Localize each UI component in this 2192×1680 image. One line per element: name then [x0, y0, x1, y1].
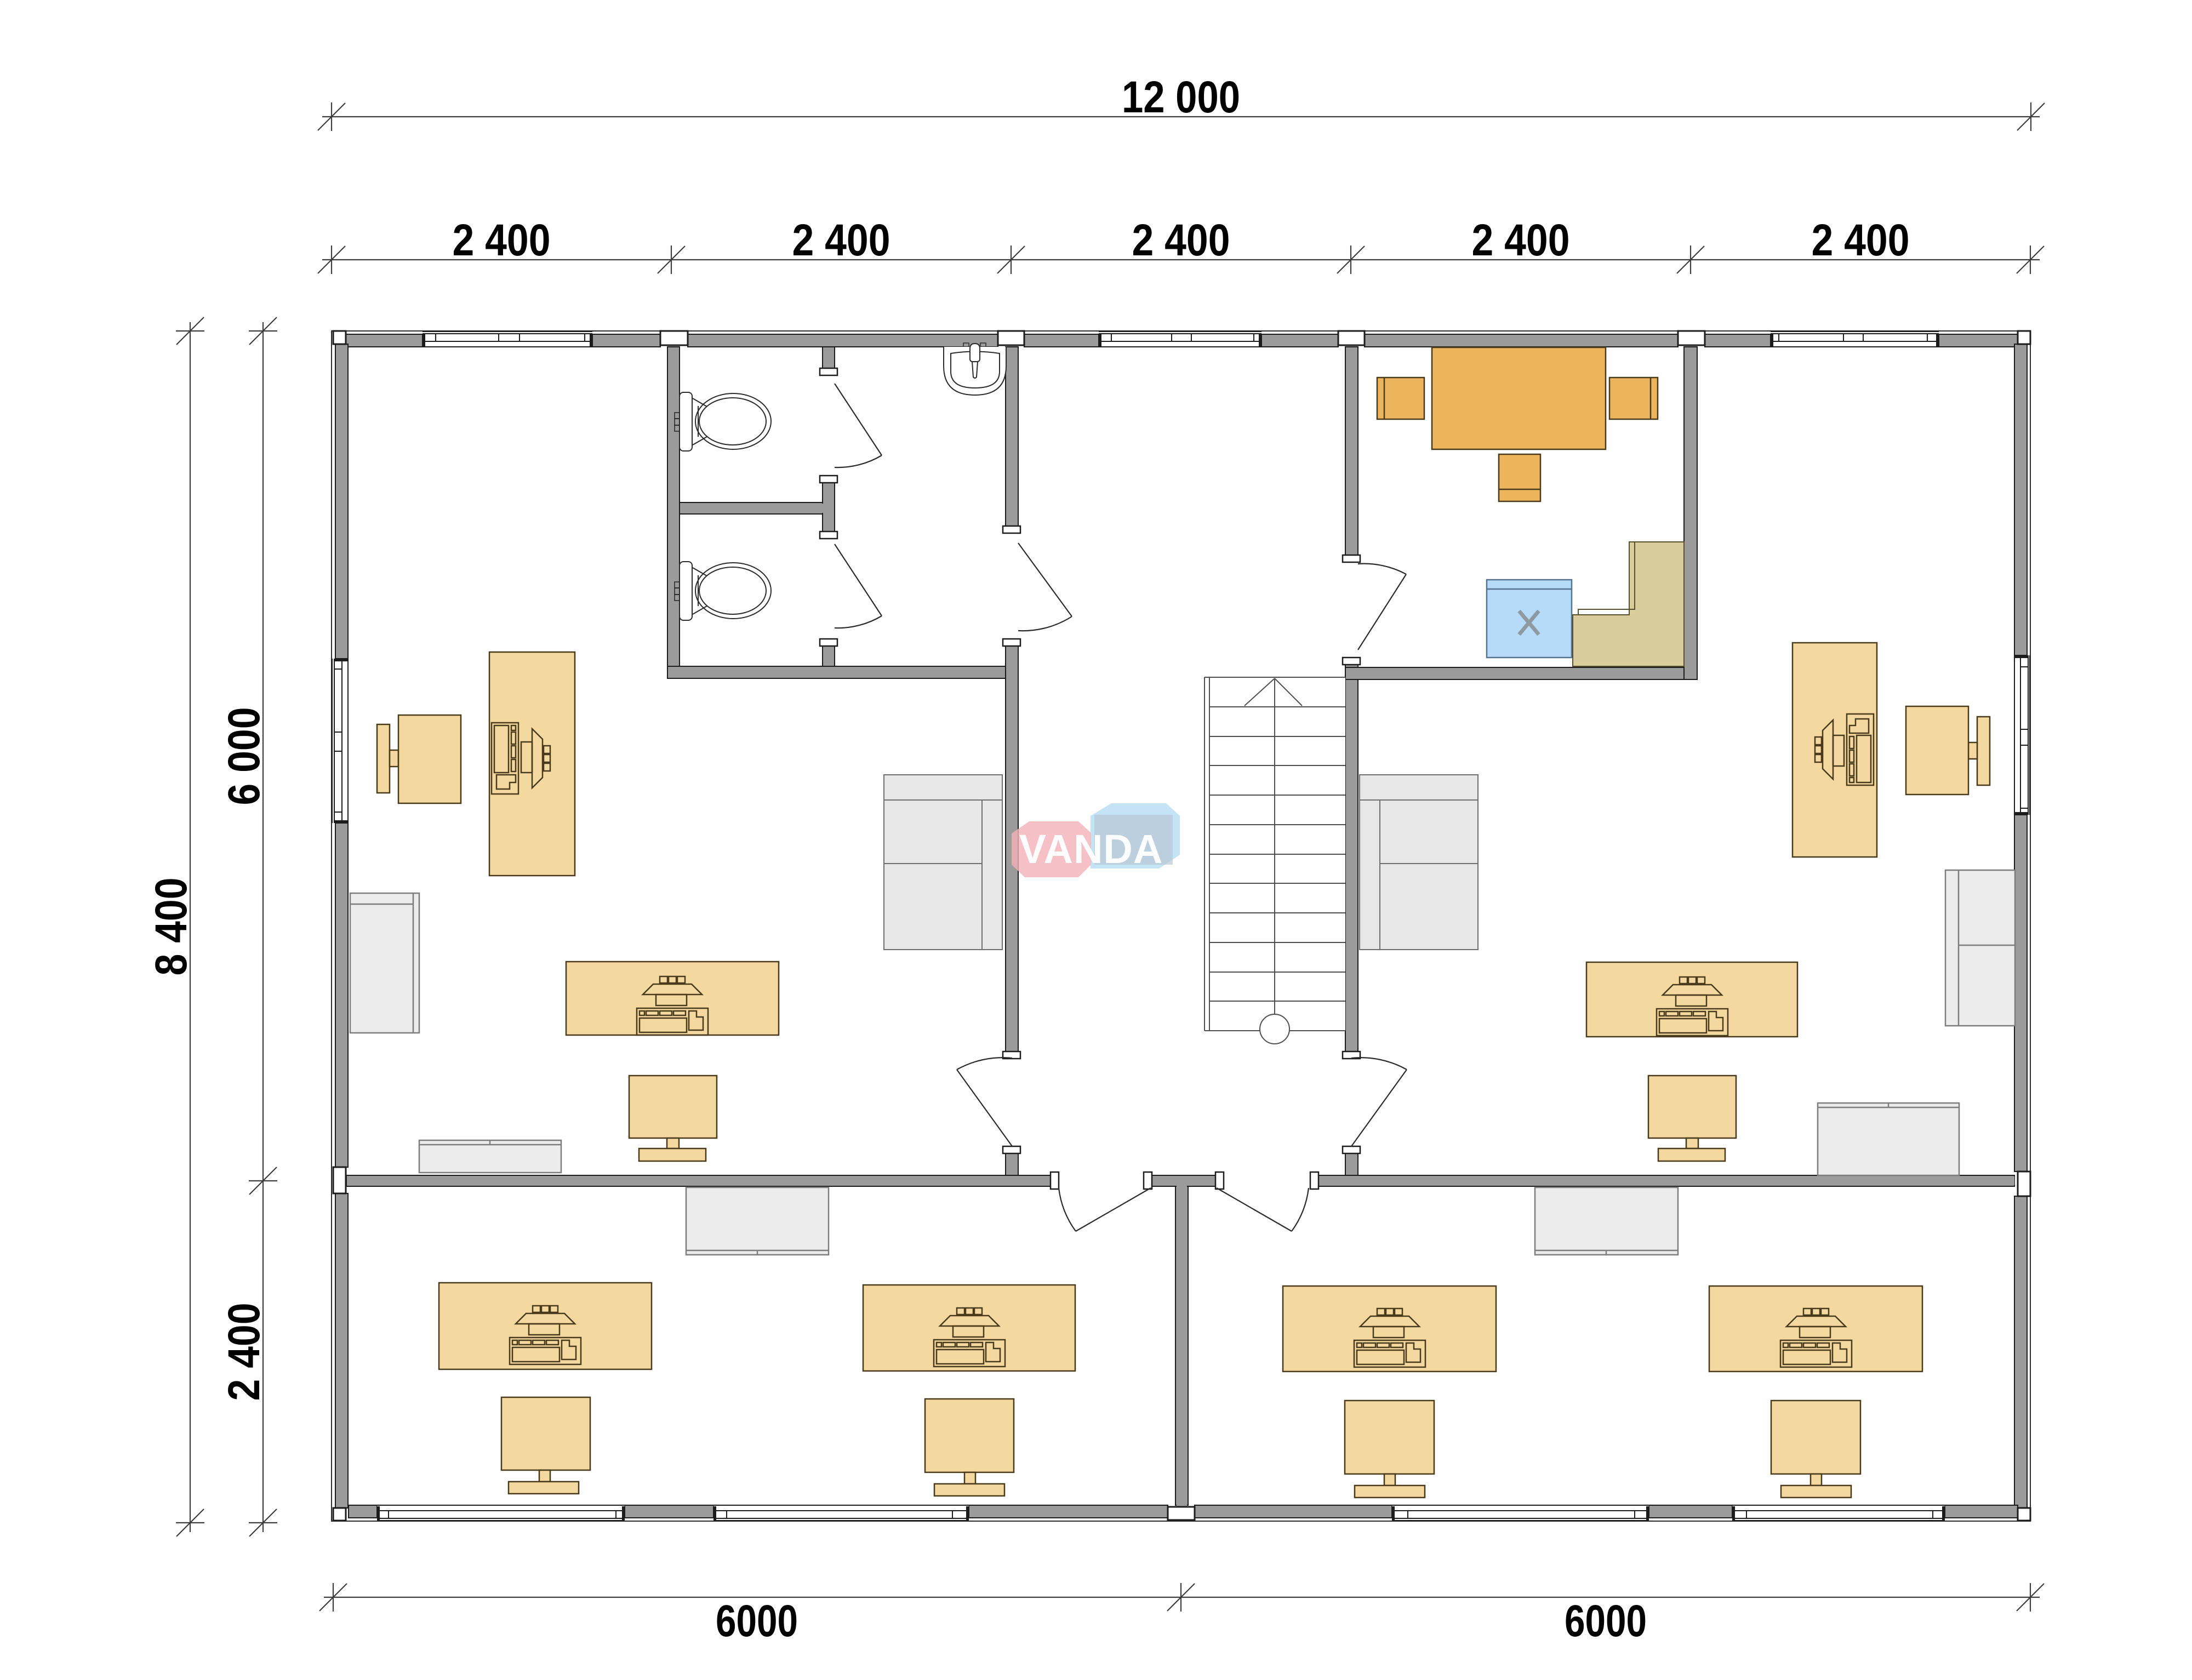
svg-text:VANDA: VANDA: [1019, 826, 1163, 872]
svg-text:8 400: 8 400: [146, 878, 196, 976]
svg-text:6 000: 6 000: [219, 707, 269, 805]
svg-text:2 400: 2 400: [792, 215, 891, 265]
svg-text:2 400: 2 400: [219, 1303, 269, 1401]
svg-text:12 000: 12 000: [1122, 72, 1240, 122]
svg-text:6000: 6000: [716, 1596, 798, 1646]
svg-text:2 400: 2 400: [1472, 215, 1570, 265]
svg-text:2 400: 2 400: [453, 215, 551, 265]
svg-text:6000: 6000: [1565, 1596, 1647, 1646]
svg-text:2 400: 2 400: [1812, 215, 1910, 265]
svg-text:2 400: 2 400: [1132, 215, 1230, 265]
